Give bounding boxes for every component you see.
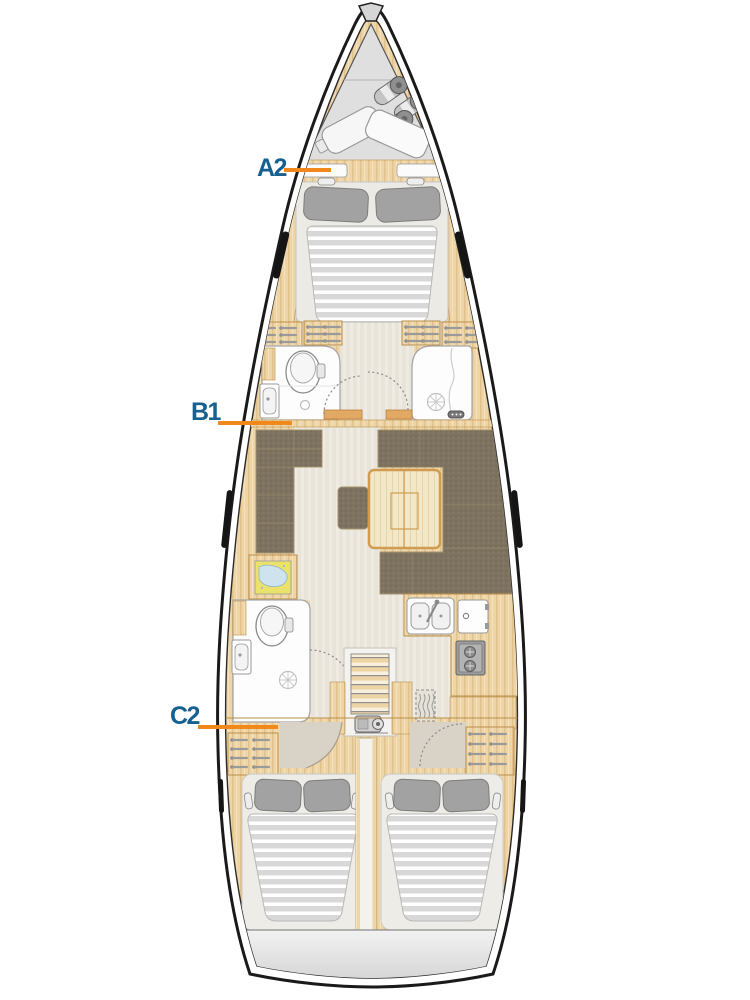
mattress [248, 814, 358, 921]
hanging-locker [228, 733, 278, 775]
aft-berth-starboard [381, 774, 503, 930]
pillow [375, 186, 441, 222]
stove-icon [456, 641, 485, 675]
pillow [442, 779, 490, 812]
pillow [393, 779, 441, 812]
nav-station [249, 555, 297, 599]
floorplan-canvas: A2 B1 C2 [0, 0, 750, 1000]
shower-drain-icon [280, 672, 297, 689]
pillow [303, 186, 369, 222]
center-divider [356, 738, 376, 932]
pillow [254, 779, 302, 812]
latch-icon [407, 178, 424, 185]
yacht-floorplan: A2 B1 C2 [0, 0, 750, 1000]
hanging-locker [402, 321, 440, 345]
door-sill [324, 410, 362, 419]
mattress [307, 226, 437, 322]
aft-cabins [222, 718, 528, 992]
ottoman [338, 487, 368, 529]
cabin-entry-starboard [410, 722, 466, 768]
label-b1: B1 [191, 398, 222, 426]
label-a2: A2 [257, 154, 287, 182]
shower-drain-icon [428, 394, 445, 411]
door-sill [386, 410, 412, 419]
sink-icon [260, 384, 279, 418]
sink-icon [232, 640, 251, 674]
saloon-table [369, 470, 440, 548]
aft-berth-port [242, 774, 364, 930]
forward-berth [296, 178, 448, 322]
latch-icon [318, 178, 335, 185]
galley-sink-icon [407, 598, 454, 634]
pillow [303, 779, 351, 812]
forward-head [260, 346, 340, 420]
salon [249, 430, 518, 599]
companionway-stairs [351, 654, 389, 714]
fridge-icon [458, 600, 489, 633]
mattress [387, 814, 497, 921]
forward-shower [412, 346, 472, 420]
folding-seat [416, 690, 435, 721]
hanging-locker [304, 321, 342, 345]
hanging-locker [466, 727, 514, 775]
label-c2: C2 [170, 702, 200, 730]
